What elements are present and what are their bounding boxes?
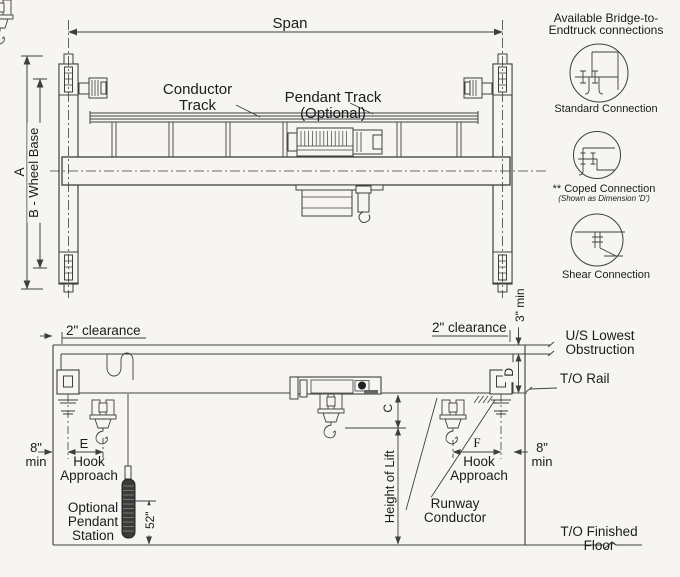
span-label: Span bbox=[255, 16, 325, 32]
legend-standard-label: Standard Connection bbox=[548, 104, 664, 115]
crane-dimension-diagram: Span A B - Wheel Base Conductor Track Pe… bbox=[0, 0, 680, 577]
dim-e-label: E bbox=[74, 437, 94, 451]
legend-coped-sublabel: (Shown as Dimension 'D') bbox=[542, 195, 666, 203]
legend-drawing bbox=[570, 44, 628, 266]
pendant-track-label: Pendant Track (Optional) bbox=[283, 90, 383, 121]
height-of-lift-label: Height of Lift bbox=[383, 442, 397, 532]
to-finished-floor-label: T/O Finished Floor bbox=[556, 525, 642, 553]
bottom-block-top bbox=[296, 185, 383, 223]
to-rail-leader bbox=[526, 387, 557, 392]
pendant-station-drawing bbox=[122, 394, 135, 538]
festoon-loop bbox=[107, 353, 133, 380]
dim-c-label: C bbox=[382, 398, 394, 418]
eight-min-left-label: 8" min bbox=[22, 441, 50, 468]
shear-connection-glyph bbox=[575, 232, 625, 256]
conductor-track-label: Conductor Track bbox=[155, 82, 240, 113]
standard-connection-glyph bbox=[575, 52, 618, 94]
eight-min-right-label: 8" min bbox=[527, 441, 557, 468]
hook-approach-right-label: Hook Approach bbox=[447, 455, 511, 483]
hook-block-glyph bbox=[0, 0, 13, 44]
three-min-label: 3" min bbox=[514, 283, 526, 327]
top-view-drawing bbox=[21, 20, 547, 298]
optional-pendant-station-label: Optional Pendant Station bbox=[64, 501, 122, 543]
clearance-right-label: 2" clearance bbox=[432, 321, 507, 335]
us-lowest-obstruction-label: U/S Lowest Obstruction bbox=[558, 329, 642, 357]
clearance-left-label: 2" clearance bbox=[66, 324, 141, 338]
dim-d-label: D bbox=[503, 362, 515, 382]
dim-b-label: B - Wheel Base bbox=[27, 123, 41, 223]
legend-title: Available Bridge-to- Endtruck connection… bbox=[548, 12, 664, 37]
crane-line-drawing bbox=[0, 0, 680, 577]
legend-shear-label: Shear Connection bbox=[548, 270, 664, 281]
runway-conductor-label: Runway Conductor bbox=[420, 497, 490, 525]
dim-f-label: F bbox=[467, 436, 487, 450]
dim-a-label: A bbox=[13, 162, 27, 182]
hook-approach-left-label: Hook Approach bbox=[57, 455, 121, 483]
floor-line bbox=[53, 542, 642, 549]
girder-top-line bbox=[61, 351, 554, 356]
left-motor bbox=[79, 78, 107, 98]
runway-conductor-hatch bbox=[474, 396, 493, 403]
hoist-trolley-top bbox=[288, 128, 382, 156]
right-motor bbox=[464, 78, 492, 98]
to-rail-label: T/O Rail bbox=[560, 372, 610, 386]
fifty-two-label: 52" bbox=[144, 505, 156, 535]
coped-connection-glyph bbox=[578, 148, 615, 175]
